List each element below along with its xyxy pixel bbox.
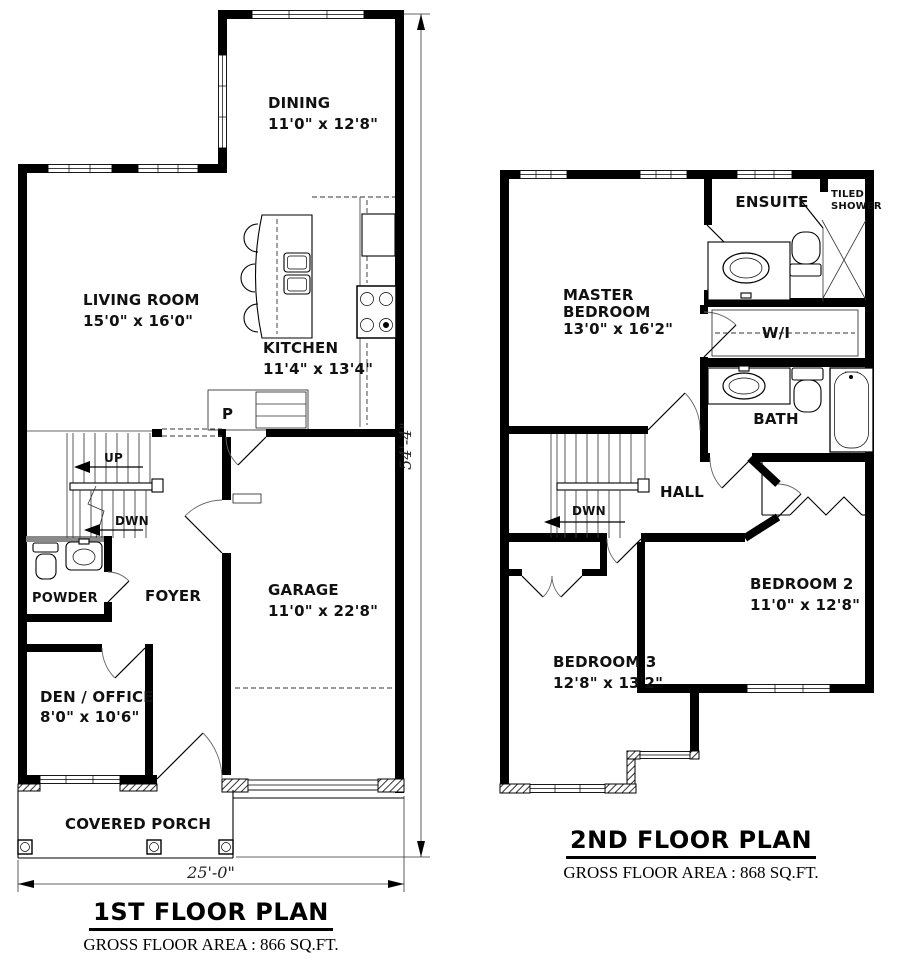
stair-label-up: UP xyxy=(104,451,123,465)
bath-vanity xyxy=(708,366,790,404)
floor2-title: 2ND FLOOR PLAN xyxy=(566,826,816,859)
floor1-title-block: 1ST FLOOR PLAN GROSS FLOOR AREA : 866 SQ… xyxy=(41,898,381,955)
garage-foyer-door xyxy=(185,500,222,553)
kitchen-island xyxy=(256,215,313,338)
front-entry-door xyxy=(157,733,222,779)
porch-post xyxy=(18,840,32,854)
ensuite-toilet xyxy=(790,232,821,276)
master-bedroom-door xyxy=(648,393,700,430)
garage-step xyxy=(233,494,261,503)
porch-post xyxy=(147,840,161,854)
stair-railing xyxy=(557,483,645,490)
garage-door xyxy=(248,780,378,790)
room-dims-master: 13'0" x 16'2" xyxy=(563,320,673,338)
room-label-powder: POWDER xyxy=(32,591,98,606)
hall-chamfer-wall xyxy=(745,517,778,538)
window xyxy=(640,752,690,759)
room-label-master-1: MASTER xyxy=(563,286,634,304)
room-label-dining: DINING xyxy=(268,94,330,112)
newel-post xyxy=(638,479,649,492)
room-label-foyer: FOYER xyxy=(145,587,201,605)
window xyxy=(747,685,830,693)
stair-label-down: DWN xyxy=(115,514,149,528)
room-label-bedroom2: BEDROOM 2 xyxy=(750,575,854,593)
room-dims-living: 15'0" x 16'0" xyxy=(83,312,193,330)
window xyxy=(48,165,112,173)
room-dims-garage: 11'0" x 22'8" xyxy=(268,602,378,620)
window xyxy=(252,11,364,19)
room-dims-bedroom3: 12'8" x 13'2" xyxy=(553,674,663,692)
window xyxy=(737,171,792,179)
powder-door xyxy=(108,572,129,602)
floor1-plan: 25'-0" 54'-4" DINING 11'0" x 12'8" LIVIN… xyxy=(18,10,430,892)
room-dims-den: 8'0" x 10'6" xyxy=(40,708,140,726)
room-label-walkin: W/I xyxy=(762,324,790,342)
fridge xyxy=(362,214,395,256)
bedroom3-closet-doors xyxy=(522,576,582,597)
bedroom2-closet-bifold xyxy=(762,462,866,515)
floor-plan-page: 25'-0" 54'-4" DINING 11'0" x 12'8" LIVIN… xyxy=(0,0,900,967)
stair-railing xyxy=(70,483,162,490)
room-label-shower-2: SHOWER xyxy=(831,201,882,212)
room-label-den: DEN / OFFICE xyxy=(40,688,154,706)
room-label-shower-1: TILED xyxy=(831,189,864,200)
powder-toilet xyxy=(33,543,58,579)
room-label-living: LIVING ROOM xyxy=(83,291,200,309)
window xyxy=(138,165,198,173)
tiled-shower-area xyxy=(822,220,866,300)
floor1-title: 1ST FLOOR PLAN xyxy=(89,898,333,931)
window xyxy=(219,55,227,148)
floor2-stairs xyxy=(544,434,649,538)
room-label-ensuite: ENSUITE xyxy=(735,193,808,211)
bedroom3-door xyxy=(607,539,641,563)
width-dimension: 25'-0" xyxy=(186,863,235,882)
height-dimension: 54'-4" xyxy=(396,422,415,470)
kitchen-foyer-door xyxy=(226,437,266,465)
porch-post xyxy=(219,840,233,854)
powder-sink xyxy=(66,539,102,570)
room-label-bedroom3: BEDROOM 3 xyxy=(553,653,657,671)
room-dims-bedroom2: 11'0" x 12'8" xyxy=(750,596,860,614)
floor1-area: GROSS FLOOR AREA : 866 SQ.FT. xyxy=(41,935,381,955)
stair-treads-upper xyxy=(565,434,631,483)
room-label-garage: GARAGE xyxy=(268,581,339,599)
floor2-plan: MASTER BEDROOM 13'0" x 16'2" ENSUITE TIL… xyxy=(500,170,882,793)
window xyxy=(40,776,120,784)
room-dims-kitchen: 11'4" x 13'4" xyxy=(263,360,373,378)
bath-toilet xyxy=(792,368,823,412)
room-dims-dining: 11'0" x 12'8" xyxy=(268,115,378,133)
room-label-hall: HALL xyxy=(660,483,704,501)
bedroom2-door xyxy=(778,484,801,517)
floor-plan-drawing: 25'-0" 54'-4" DINING 11'0" x 12'8" LIVIN… xyxy=(0,0,900,967)
newel-post xyxy=(152,479,163,492)
window xyxy=(530,785,605,793)
window xyxy=(520,171,567,179)
den-door xyxy=(102,648,145,678)
bathtub xyxy=(830,368,873,452)
floor2-title-block: 2ND FLOOR PLAN GROSS FLOOR AREA : 868 SQ… xyxy=(521,826,861,883)
stove xyxy=(357,286,396,338)
room-label-porch: COVERED PORCH xyxy=(65,815,211,833)
bath-door xyxy=(710,458,752,488)
stair-label-down: DWN xyxy=(572,504,606,518)
room-label-kitchen: KITCHEN xyxy=(263,339,338,357)
room-label-pantry: P xyxy=(222,405,233,423)
walkin-door xyxy=(704,312,736,357)
room-label-bath: BATH xyxy=(753,410,798,428)
room-label-master-2: BEDROOM xyxy=(563,303,651,321)
ensuite-vanity xyxy=(708,242,790,300)
floor2-area: GROSS FLOOR AREA : 868 SQ.FT. xyxy=(521,863,861,883)
window xyxy=(640,171,687,179)
